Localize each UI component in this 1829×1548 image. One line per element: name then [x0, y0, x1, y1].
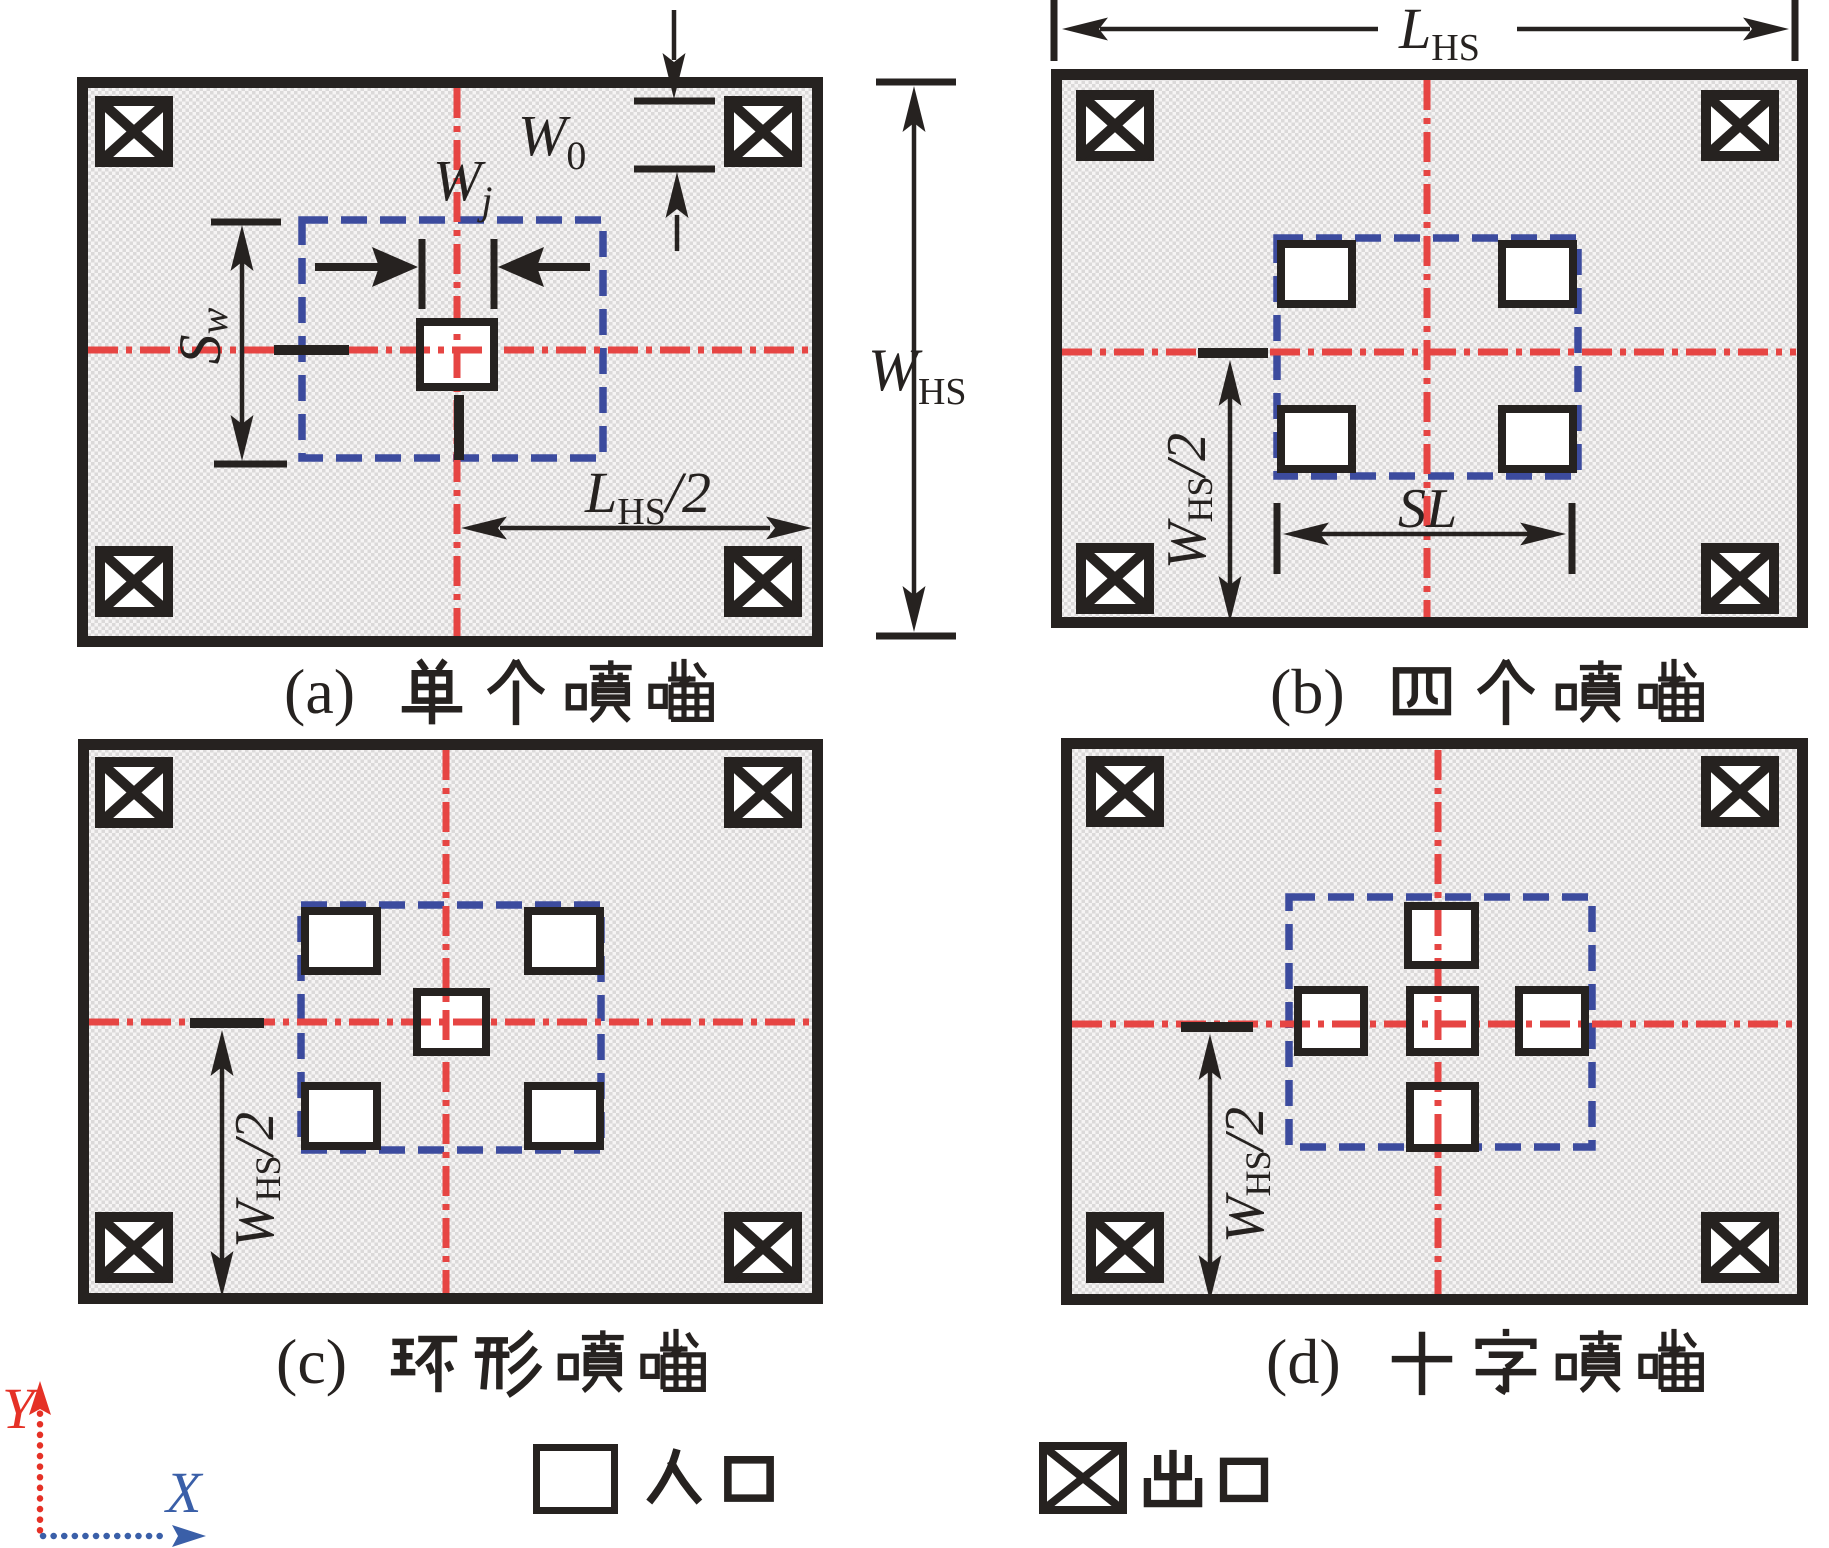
svg-text:(b): (b)	[1270, 656, 1345, 727]
svg-text:(a): (a)	[284, 656, 355, 727]
svg-text:(c): (c)	[276, 1326, 347, 1397]
svg-text:LHS: LHS	[1398, 0, 1480, 69]
svg-text:X: X	[164, 1460, 204, 1525]
svg-text:WHS: WHS	[868, 337, 967, 413]
svg-text:SL: SL	[1398, 478, 1457, 540]
svg-text:(d): (d)	[1266, 1326, 1341, 1397]
